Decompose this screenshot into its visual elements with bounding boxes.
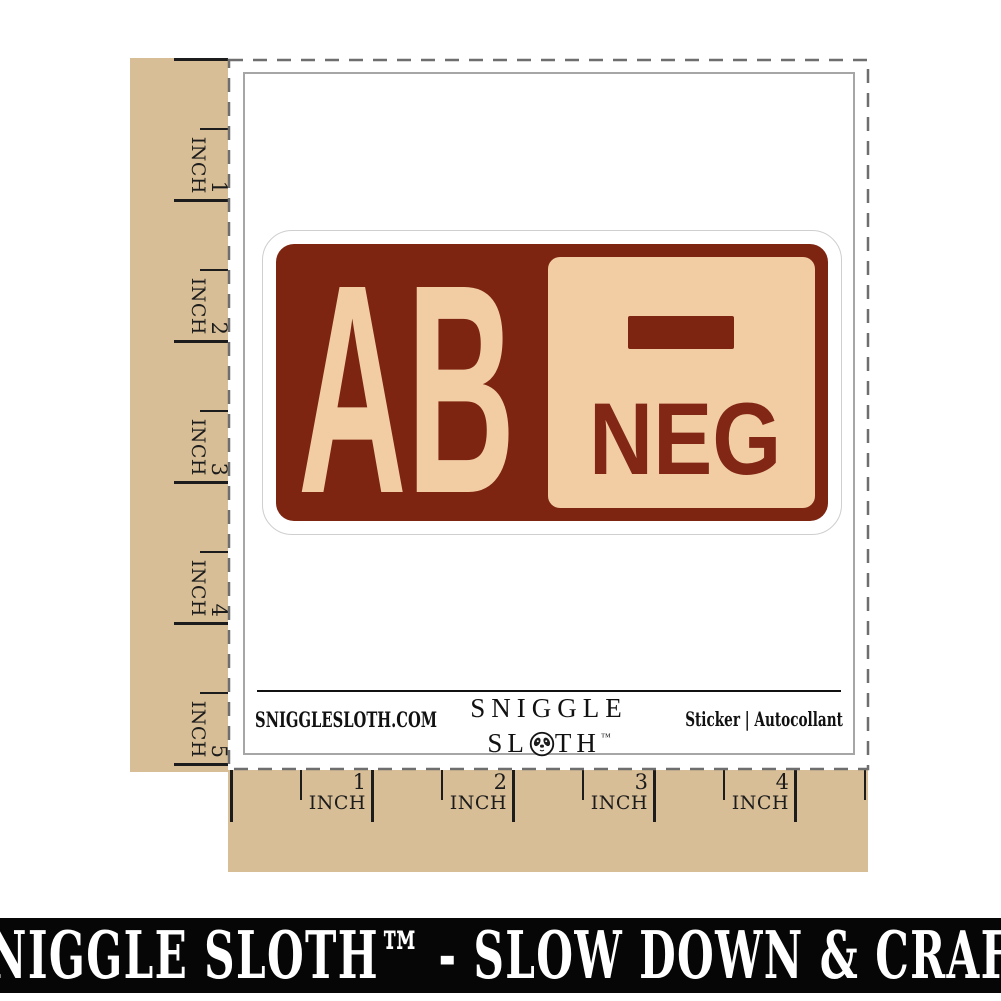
ruler-tick bbox=[174, 199, 228, 202]
sticker-body: AB NEG bbox=[276, 244, 828, 521]
ruler-tick bbox=[653, 770, 656, 822]
trademark-text: ™ bbox=[601, 732, 611, 743]
footer-banner: SNIGGLE SLOTH™ - SLOW DOWN & CRAFT bbox=[0, 918, 1001, 993]
product-mockup: 1INCH2INCH3INCH4INCH5INCH 1INCH2INCH3INC… bbox=[0, 0, 1001, 1001]
minus-icon bbox=[628, 316, 734, 349]
ruler-tick bbox=[174, 58, 228, 61]
inch-label: 5INCH bbox=[182, 697, 228, 761]
inch-label: 3INCH bbox=[587, 773, 651, 814]
inch-label: 2INCH bbox=[182, 274, 228, 338]
ruler-half-tick bbox=[200, 269, 228, 271]
ruler-tick bbox=[174, 481, 228, 484]
ruler-half-tick bbox=[582, 770, 584, 800]
banner-text: SNIGGLE SLOTH™ - SLOW DOWN & CRAFT bbox=[0, 917, 1001, 994]
ruler-tick bbox=[512, 770, 515, 822]
ruler-tick bbox=[371, 770, 374, 822]
rh-panel: NEG bbox=[548, 257, 815, 508]
blood-type-text: AB bbox=[298, 241, 515, 539]
left-ruler: 1INCH2INCH3INCH4INCH5INCH bbox=[130, 58, 228, 772]
sloth-face-icon bbox=[529, 731, 555, 757]
ruler-half-tick bbox=[300, 770, 302, 800]
blood-type-sticker: AB NEG bbox=[262, 230, 842, 535]
footer-divider bbox=[257, 690, 841, 692]
ruler-half-tick bbox=[864, 770, 866, 800]
ruler-tick bbox=[174, 622, 228, 625]
ruler-half-tick bbox=[200, 128, 228, 130]
ruler-half-tick bbox=[441, 770, 443, 800]
bottom-ruler: 1INCH2INCH3INCH4INCH bbox=[228, 770, 868, 872]
inch-label: 1INCH bbox=[182, 133, 228, 197]
ruler-half-tick bbox=[200, 692, 228, 694]
rh-text: NEG bbox=[589, 388, 781, 490]
product-type-text: Sticker | Autocollant bbox=[685, 707, 843, 731]
ruler-half-tick bbox=[200, 551, 228, 553]
inch-label: 2INCH bbox=[446, 773, 510, 814]
ruler-tick bbox=[794, 770, 797, 822]
ruler-half-tick bbox=[723, 770, 725, 800]
ruler-half-tick bbox=[200, 410, 228, 412]
inch-label: 3INCH bbox=[182, 415, 228, 479]
ruler-tick bbox=[230, 770, 233, 822]
inch-label: 4INCH bbox=[728, 773, 792, 814]
ruler-tick bbox=[174, 763, 228, 766]
inch-label: 1INCH bbox=[305, 773, 369, 814]
sticker-sheet: AB NEG SNIGGLESLOTH.COM SNIGGLE SL bbox=[243, 72, 855, 755]
ruler-tick bbox=[174, 340, 228, 343]
inch-label: 4INCH bbox=[182, 556, 228, 620]
